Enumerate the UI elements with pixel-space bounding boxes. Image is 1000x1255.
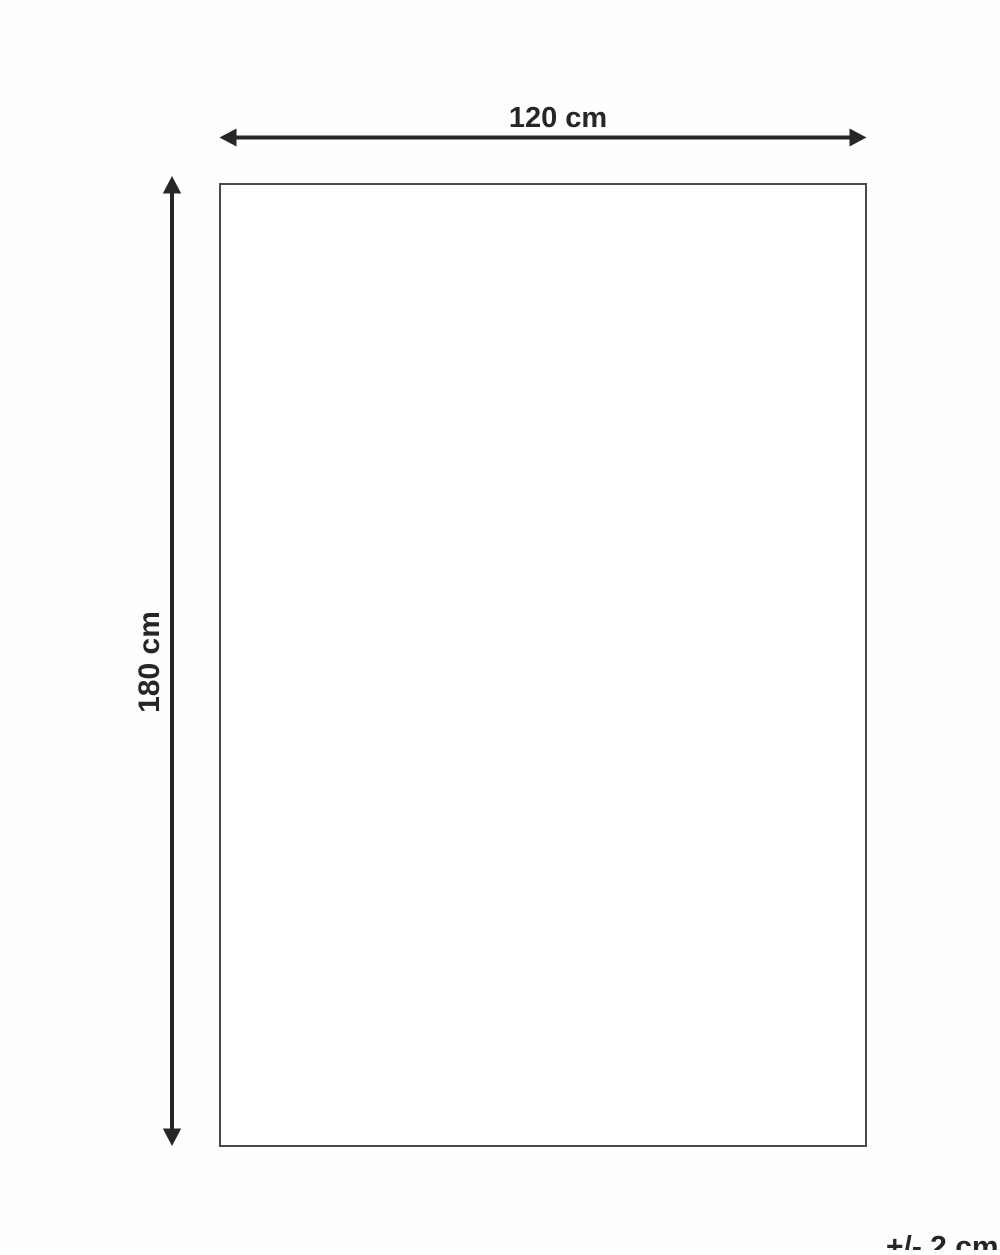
svg-text:120 cm: 120 cm	[509, 102, 607, 134]
svg-text:+/- 2 cm: +/- 2 cm	[886, 1231, 999, 1251]
svg-text:180 cm: 180 cm	[133, 611, 166, 713]
